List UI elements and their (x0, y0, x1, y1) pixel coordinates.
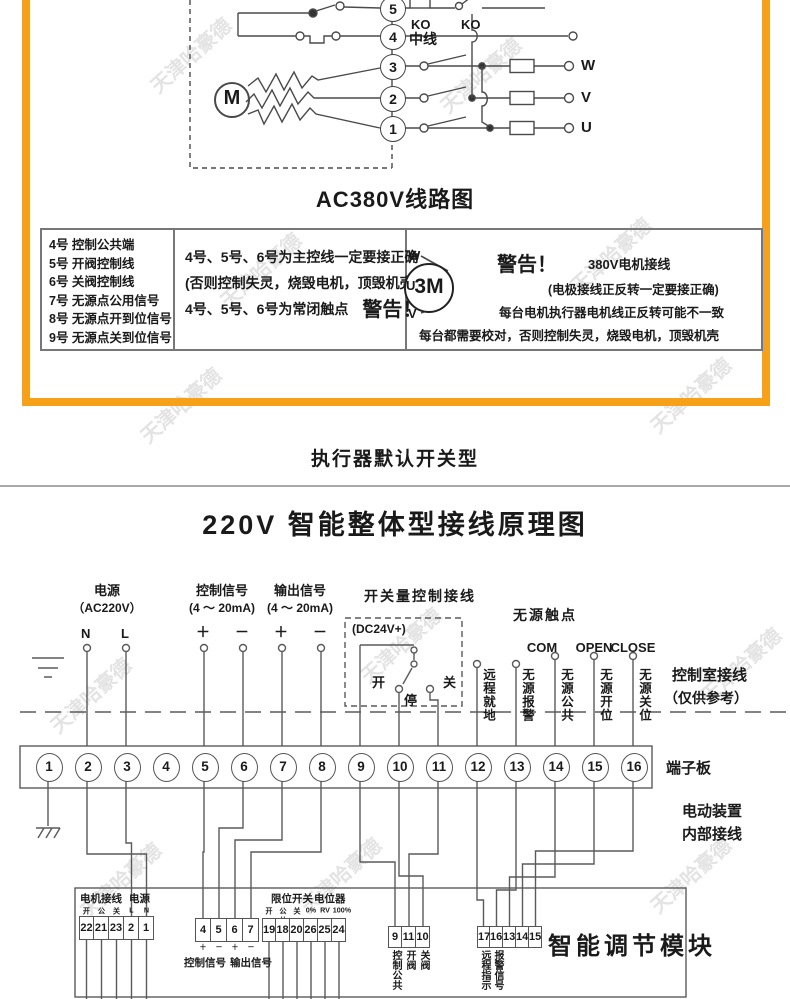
passive-vertical-label: 远程就地 (481, 668, 495, 730)
module-terminal-cell: 11 (402, 926, 416, 948)
strip-valve-terminals: 91110 (388, 926, 430, 948)
table-col-main-warning: 4号、5号、6号为主控线一定要接正确 (否则控制失灵，烧毁电机，顶毁机壳) 4号… (175, 230, 407, 349)
module-terminal-cell: 24 (332, 918, 346, 942)
ac380-title: AC380V线路图 (30, 182, 760, 214)
terminal-circle: 13 (504, 753, 531, 782)
strip-signal-polarity: ＋－＋－ (195, 942, 259, 953)
strip-signal-label1: 控制信号 (184, 955, 226, 970)
neutral-label: 中线 (409, 29, 437, 49)
module-terminal-cell: 10 (416, 926, 430, 948)
col3-line4: 每台都需要校对，否则控制失灵，烧毁电机，顶毁机壳 (419, 325, 719, 344)
n-label: N (81, 626, 90, 641)
ac380-terminal-circle: 4 (380, 24, 406, 50)
module-terminal-cell: 2 (124, 916, 139, 940)
ac380-terminal-circle: 3 (380, 54, 406, 80)
output-minus: － (313, 622, 327, 642)
terminal-circle: 11 (426, 753, 453, 782)
terminal-circle: 12 (465, 753, 492, 782)
terminal-circle: 5 (192, 753, 219, 782)
terminal-description-line: 9号 无源点关到位信号 (49, 329, 173, 348)
remote-terminal-vlabel: 报警信号 (491, 950, 503, 998)
power-sub-label: （AC220V） (57, 599, 157, 616)
strip-sub-label: － (212, 943, 226, 953)
module-terminal-cell: 21 (94, 916, 109, 940)
col3-phase-w: W (408, 248, 420, 263)
strip-signal-terminals: 4567 (195, 918, 259, 942)
terminal-circle: 10 (387, 753, 414, 782)
switch-open-label: 开 (372, 672, 385, 691)
module-terminal-cell: 18 (276, 918, 290, 942)
terminal-circle: 15 (582, 753, 609, 782)
ac380-terminal-circle: 1 (380, 116, 406, 142)
strip-motor-label2: 电源 (129, 891, 150, 906)
strip-limit-label1: 限位开关 (271, 891, 313, 906)
motor-symbol-label: M (220, 87, 244, 110)
diagram-title: 220V 智能整体型接线原理图 (0, 503, 790, 542)
passive-vertical-label: 无源关位 (637, 668, 651, 730)
terminal-circle: 1 (36, 753, 63, 782)
warning-line-2: (否则控制失灵，烧毁电机，顶毁机壳) (185, 270, 405, 296)
module-terminal-cell: 5 (211, 918, 227, 942)
terminal-description-line: 4号 控制公共端 (49, 236, 173, 255)
output-plus: ＋ (274, 622, 288, 642)
l-label: L (121, 626, 129, 641)
col3-line1: 380V电机接线 (588, 254, 670, 273)
valve-terminal-vlabel: 开阀 (403, 950, 415, 998)
terminal-description-line: 5号 开阀控制线 (49, 255, 173, 274)
strip-sub-label: ＋ (196, 943, 210, 953)
module-terminal-cell: 26 (304, 918, 318, 942)
terminal-description-line: 8号 无源点开到位信号 (49, 310, 173, 329)
close-label: CLOSE (608, 640, 658, 655)
control-minus: － (235, 622, 249, 642)
strip-remote-terminals: 1716131415 (477, 926, 542, 948)
warning-line-3: 4号、5号、6号为常闭触点警告！ (185, 296, 405, 323)
passive-contact-label: 无源触点 (505, 605, 585, 625)
strip-sub-label: ＋ (228, 943, 242, 953)
strip-sub-label: － (244, 943, 258, 953)
power-label: 电源 (67, 580, 147, 599)
section-divider (0, 485, 790, 487)
control-room-label: 控制室接线 (672, 664, 747, 685)
passive-vertical-label: 无源报警 (520, 668, 534, 730)
phase-u: U (581, 119, 592, 136)
module-terminal-cell: 22 (79, 916, 94, 940)
control-signal-label: 控制信号 (182, 580, 262, 599)
module-terminal-cell: 14 (516, 926, 529, 948)
valve-terminal-vlabel: 关阀 (417, 950, 429, 998)
terminal-circle: 9 (348, 753, 375, 782)
module-terminal-cell: 7 (243, 918, 259, 942)
scanned-wiring-document: 天津哈豪德天津哈豪德天津哈豪德天津哈豪德天津哈豪德天津哈豪德天津哈豪德天津哈豪德… (0, 0, 790, 999)
reference-only-label: （仅供参考） (664, 688, 748, 708)
phase-v: V (581, 89, 591, 106)
control-plus: ＋ (196, 622, 210, 642)
strip-limit-terminals: 191820262524 (262, 918, 346, 942)
terminal-circle: 8 (309, 753, 336, 782)
warning-line-1: 4号、5号、6号为主控线一定要接正确 (185, 244, 405, 270)
module-terminal-cell: 1 (139, 916, 154, 940)
module-terminal-cell: 15 (529, 926, 542, 948)
device-label-1: 电动装置 (682, 800, 742, 821)
terminal-circle: 7 (270, 753, 297, 782)
com-label: COM (522, 640, 562, 655)
section-heading: 执行器默认开关型 (0, 444, 790, 471)
strip-signal-label2: 输出信号 (230, 955, 272, 970)
terminal-circle: 14 (543, 753, 570, 782)
module-terminal-cell: 20 (290, 918, 304, 942)
module-terminal-cell: 23 (109, 916, 124, 940)
passive-vertical-label: 无源公共 (559, 668, 573, 730)
module-terminal-cell: 9 (388, 926, 402, 948)
output-signal-label: 输出信号 (260, 580, 340, 599)
col3-phase-v: V (408, 306, 417, 321)
col3-line2: (电极接线正反转一定要接正确) (548, 279, 719, 298)
passive-vertical-label: 无源开位 (598, 668, 612, 730)
ko-label-2: KO (461, 17, 481, 32)
strip-limit-label2: 电位器 (314, 891, 346, 906)
remote-terminal-vlabel: 远程指示 (478, 950, 490, 998)
module-terminal-cell: 13 (503, 926, 516, 948)
ac380-terminal-circle: 2 (380, 86, 406, 112)
module-terminal-cell: 17 (477, 926, 490, 948)
terminal-circle: 16 (621, 753, 648, 782)
terminal-circle: 3 (114, 753, 141, 782)
terminal-circle: 2 (75, 753, 102, 782)
switch-stop-label: 停 (404, 690, 417, 709)
terminal-circle: 6 (231, 753, 258, 782)
module-label: 智能调节模块 (548, 926, 716, 961)
col3-line3: 每台电机执行器电机线正反转可能不一致 (499, 302, 724, 321)
module-terminal-cell: 16 (490, 926, 503, 948)
switch-close-label: 关 (443, 672, 456, 691)
device-label-2: 内部接线 (682, 823, 742, 844)
terminal-board-label: 端子板 (666, 757, 711, 778)
valve-terminal-vlabel: 控制公共 (389, 950, 401, 998)
phase-w: W (581, 57, 595, 74)
output-signal-range: (4 ～ 20mA) (250, 599, 350, 616)
terminal-circle: 4 (153, 753, 180, 782)
terminal-description-line: 7号 无源点公用信号 (49, 292, 173, 311)
module-terminal-cell: 19 (262, 918, 276, 942)
strip-motor-label1: 电机接线 (80, 891, 122, 906)
module-terminal-cell: 4 (195, 918, 211, 942)
switch-control-label: 开关量控制接线 (355, 586, 485, 606)
strip-motor-terminals: 22212321 (79, 916, 154, 940)
module-terminal-cell: 25 (318, 918, 332, 942)
module-terminal-cell: 6 (227, 918, 243, 942)
table-col-terminal-list: 4号 控制公共端5号 开阀控制线6号 关阀控制线7号 无源点公用信号8号 无源点… (42, 230, 175, 349)
col3-phase-u: U (406, 278, 415, 293)
dc24v-label: (DC24V+) (352, 622, 406, 636)
col3-warning: 警告！ (497, 248, 557, 277)
terminal-description-line: 6号 关阀控制线 (49, 273, 173, 292)
